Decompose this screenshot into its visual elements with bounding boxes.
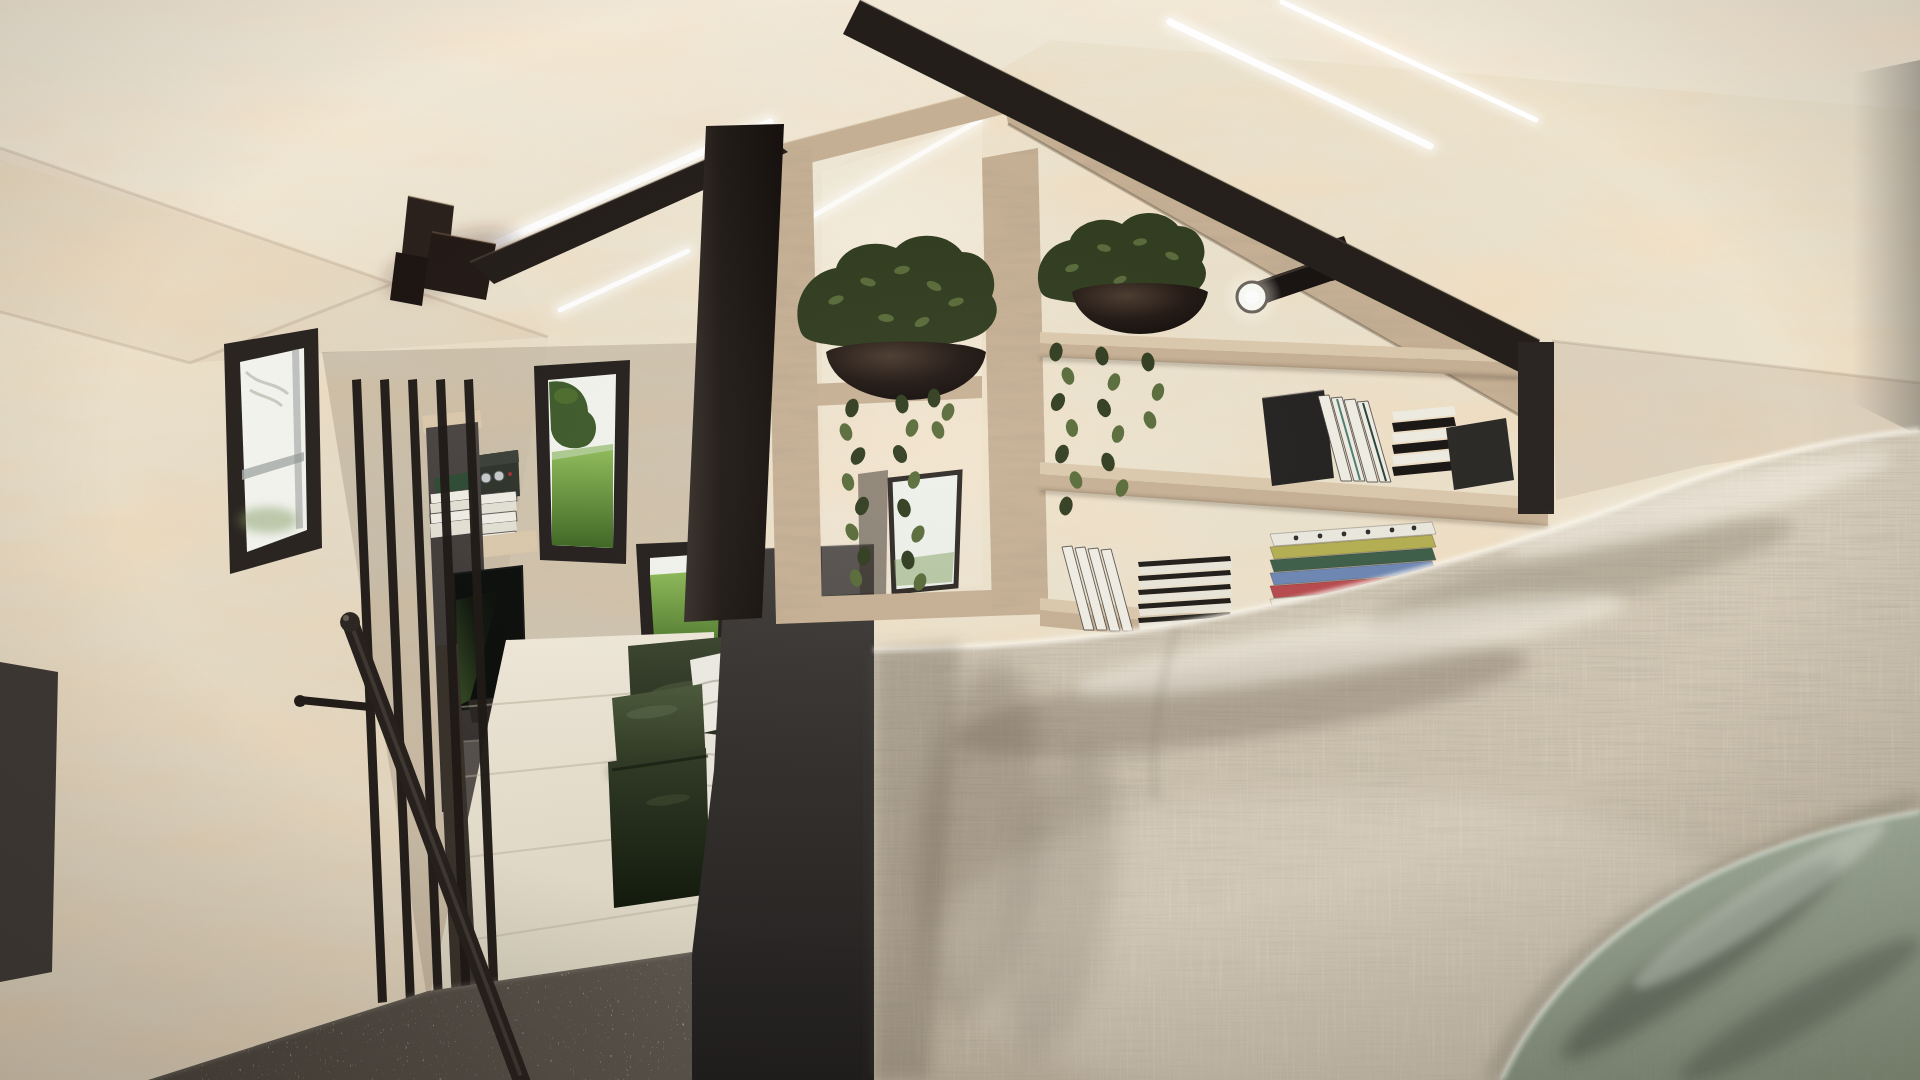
- light-grade: [0, 0, 1920, 1080]
- render-figure: Daylit sleeping loft of a tiny house cla…: [0, 0, 1920, 1080]
- loft-bedroom-render: [0, 0, 1920, 1080]
